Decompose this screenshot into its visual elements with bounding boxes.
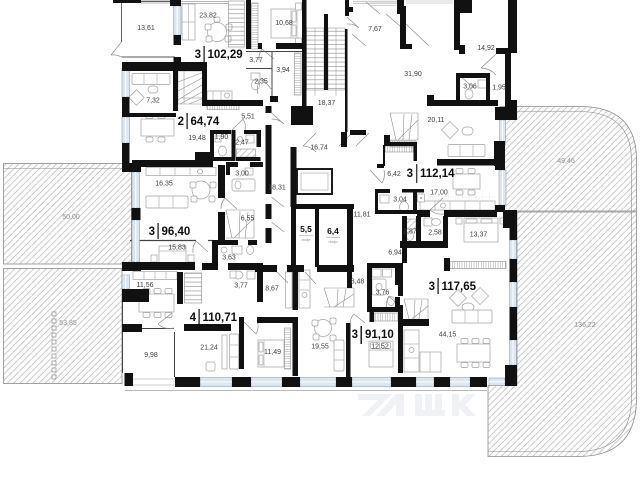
svg-text:1,90: 1,90 <box>215 134 229 141</box>
svg-text:20,11: 20,11 <box>428 117 445 124</box>
svg-text:10,68: 10,68 <box>275 20 293 27</box>
svg-text:5,51: 5,51 <box>241 114 255 121</box>
svg-text:3: 3 <box>429 281 435 293</box>
svg-text:50,00: 50,00 <box>62 214 80 221</box>
svg-text:11,49: 11,49 <box>264 349 281 356</box>
svg-text:лифт: лифт <box>328 239 338 244</box>
svg-text:49,46: 49,46 <box>557 158 575 165</box>
svg-text:2: 2 <box>178 116 184 128</box>
svg-text:110,71: 110,71 <box>203 312 238 324</box>
svg-text:3,94: 3,94 <box>276 67 290 74</box>
svg-text:136,22: 136,22 <box>574 322 596 329</box>
svg-text:18,37: 18,37 <box>318 100 336 107</box>
svg-text:7,32: 7,32 <box>146 98 160 105</box>
svg-text:31,90: 31,90 <box>404 71 422 78</box>
svg-text:3: 3 <box>149 226 155 238</box>
svg-text:3,63: 3,63 <box>222 255 236 262</box>
svg-text:3,76: 3,76 <box>376 290 390 297</box>
svg-text:23,82: 23,82 <box>199 13 217 20</box>
svg-text:117,65: 117,65 <box>442 281 477 293</box>
svg-text:14,92: 14,92 <box>477 45 495 52</box>
svg-text:7,67: 7,67 <box>368 26 382 33</box>
svg-text:8,48: 8,48 <box>351 279 365 286</box>
svg-text:16,35: 16,35 <box>155 181 173 188</box>
svg-text:2,47: 2,47 <box>235 140 249 147</box>
svg-text:9,98: 9,98 <box>144 352 158 359</box>
svg-text:2,87: 2,87 <box>403 229 417 236</box>
svg-text:3,04: 3,04 <box>393 197 407 204</box>
svg-text:3,77: 3,77 <box>234 283 248 290</box>
svg-text:2,58: 2,58 <box>428 230 442 237</box>
svg-text:4: 4 <box>190 312 197 324</box>
svg-text:6,94: 6,94 <box>388 250 402 257</box>
svg-text:11,81: 11,81 <box>354 212 371 219</box>
svg-text:6,42: 6,42 <box>387 171 401 178</box>
svg-text:64,74: 64,74 <box>191 116 220 128</box>
svg-text:16,74: 16,74 <box>310 145 328 152</box>
svg-text:6,55: 6,55 <box>241 216 255 223</box>
svg-text:6,4: 6,4 <box>327 226 339 236</box>
svg-text:3,06: 3,06 <box>463 84 477 91</box>
svg-text:91,10: 91,10 <box>365 329 394 341</box>
svg-text:112,14: 112,14 <box>420 168 455 180</box>
svg-text:лифт: лифт <box>301 237 311 242</box>
svg-text:2,35: 2,35 <box>254 79 268 86</box>
svg-text:1,95: 1,95 <box>492 85 506 92</box>
svg-text:11,56: 11,56 <box>137 282 154 289</box>
svg-text:3,00: 3,00 <box>235 171 249 178</box>
svg-text:8,67: 8,67 <box>265 286 279 293</box>
svg-text:13,37: 13,37 <box>470 232 488 239</box>
svg-text:3: 3 <box>352 329 358 341</box>
svg-text:53,85: 53,85 <box>59 320 77 327</box>
svg-text:96,40: 96,40 <box>162 226 191 238</box>
svg-text:17,00: 17,00 <box>430 190 448 197</box>
svg-text:19,48: 19,48 <box>188 135 206 142</box>
svg-text:13,61: 13,61 <box>137 25 155 32</box>
svg-text:15,83: 15,83 <box>168 245 186 252</box>
svg-text:102,29: 102,29 <box>208 49 243 61</box>
svg-text:21,24: 21,24 <box>200 345 218 352</box>
svg-text:44,15: 44,15 <box>439 332 457 339</box>
svg-text:18,31: 18,31 <box>268 185 286 192</box>
svg-text:3: 3 <box>195 49 201 61</box>
svg-text:3,77: 3,77 <box>249 57 263 64</box>
svg-text:19,55: 19,55 <box>311 344 329 351</box>
svg-text:3: 3 <box>407 168 413 180</box>
svg-text:12,52: 12,52 <box>371 344 389 351</box>
svg-text:5,5: 5,5 <box>300 224 312 234</box>
